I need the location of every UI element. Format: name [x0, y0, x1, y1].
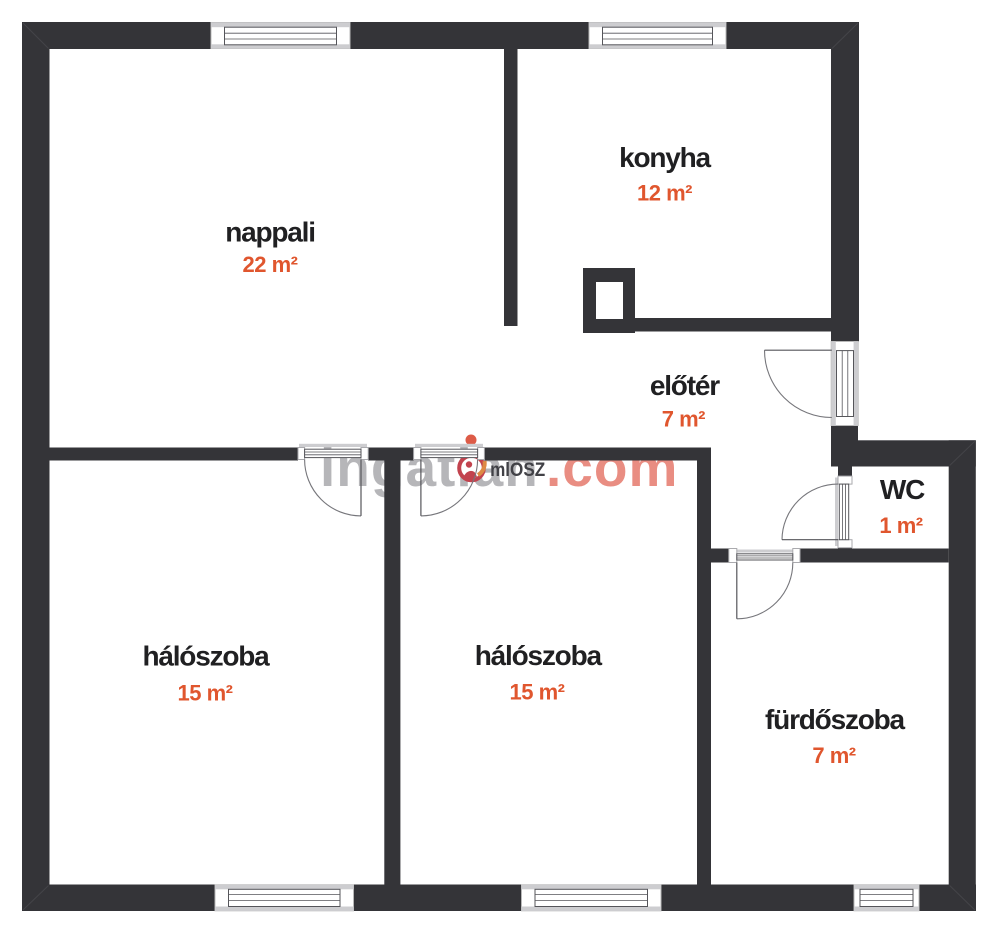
svg-text:hálószoba: hálószoba: [475, 640, 603, 671]
svg-text:nappali: nappali: [225, 217, 315, 248]
svg-text:előtér: előtér: [650, 370, 720, 401]
svg-text:konyha: konyha: [619, 142, 711, 173]
svg-text:12 m²: 12 m²: [637, 181, 692, 206]
svg-text:15 m²: 15 m²: [510, 680, 565, 705]
svg-text:.com: .com: [546, 436, 678, 498]
svg-text:WC: WC: [880, 474, 925, 505]
svg-text:mlOSZ: mlOSZ: [490, 459, 545, 480]
svg-text:fürdőszoba: fürdőszoba: [765, 704, 906, 735]
svg-text:1 m²: 1 m²: [879, 513, 922, 538]
svg-text:7 m²: 7 m²: [812, 743, 855, 768]
svg-text:15 m²: 15 m²: [178, 681, 233, 706]
svg-text:hálószoba: hálószoba: [142, 641, 270, 672]
svg-text:22 m²: 22 m²: [243, 252, 298, 277]
svg-text:7 m²: 7 m²: [662, 406, 705, 431]
